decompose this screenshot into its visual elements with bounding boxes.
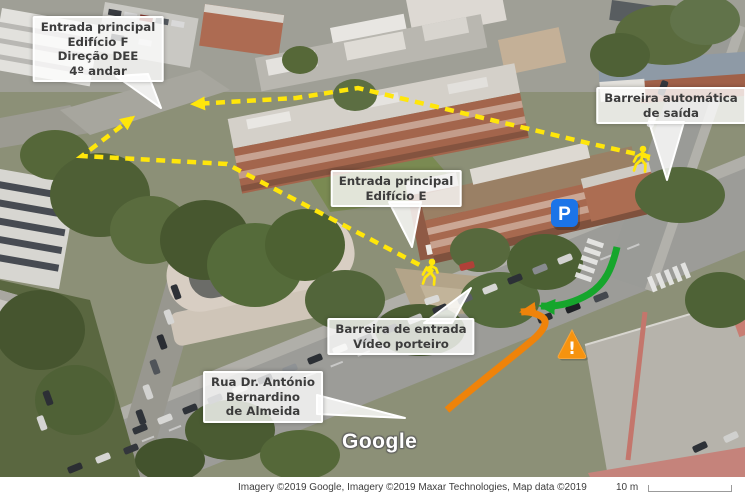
callout-line: 4º andar <box>41 64 156 79</box>
callout-line: Edifício E <box>339 189 454 204</box>
callout-line: Vídeo porteiro <box>335 337 466 352</box>
callout-rua-dr-antonio: Rua Dr. António Bernardino de Almeida <box>203 371 323 423</box>
svg-text:P: P <box>558 204 571 225</box>
callout-line: de saída <box>604 106 738 121</box>
callout-line: Entrada principal <box>41 20 156 35</box>
callout-line: Entrada principal <box>339 174 454 189</box>
callout-line: Edifício F <box>41 35 156 50</box>
callout-line: Direção DEE <box>41 49 156 64</box>
callout-line: Barreira de entrada <box>335 322 466 337</box>
google-watermark: Google <box>342 430 417 454</box>
screenshot: P ! Entrada principal Edifício F Direção… <box>0 0 745 499</box>
svg-text:!: ! <box>568 339 576 359</box>
scale-bar <box>648 485 732 492</box>
callout-barreira-automatica-saida: Barreira automática de saída <box>596 87 745 124</box>
callout-barreira-entrada: Barreira de entrada Vídeo porteiro <box>327 318 474 355</box>
parking-icon: P <box>551 199 580 230</box>
callout-entrada-edificio-f: Entrada principal Edifício F Direção DEE… <box>33 16 164 82</box>
callout-line: de Almeida <box>211 404 315 419</box>
map-area: P ! Entrada principal Edifício F Direção… <box>0 0 745 477</box>
callout-entrada-edificio-e: Entrada principal Edifício E <box>331 170 462 207</box>
callout-line: Barreira automática <box>604 91 738 106</box>
imagery-attribution: Imagery ©2019 Google, Imagery ©2019 Maxa… <box>238 482 587 493</box>
callout-line: Rua Dr. António <box>211 375 315 390</box>
scale-label: 10 m <box>616 482 638 493</box>
attribution-bar: Imagery ©2019 Google, Imagery ©2019 Maxa… <box>0 477 745 499</box>
callout-line: Bernardino <box>211 390 315 405</box>
